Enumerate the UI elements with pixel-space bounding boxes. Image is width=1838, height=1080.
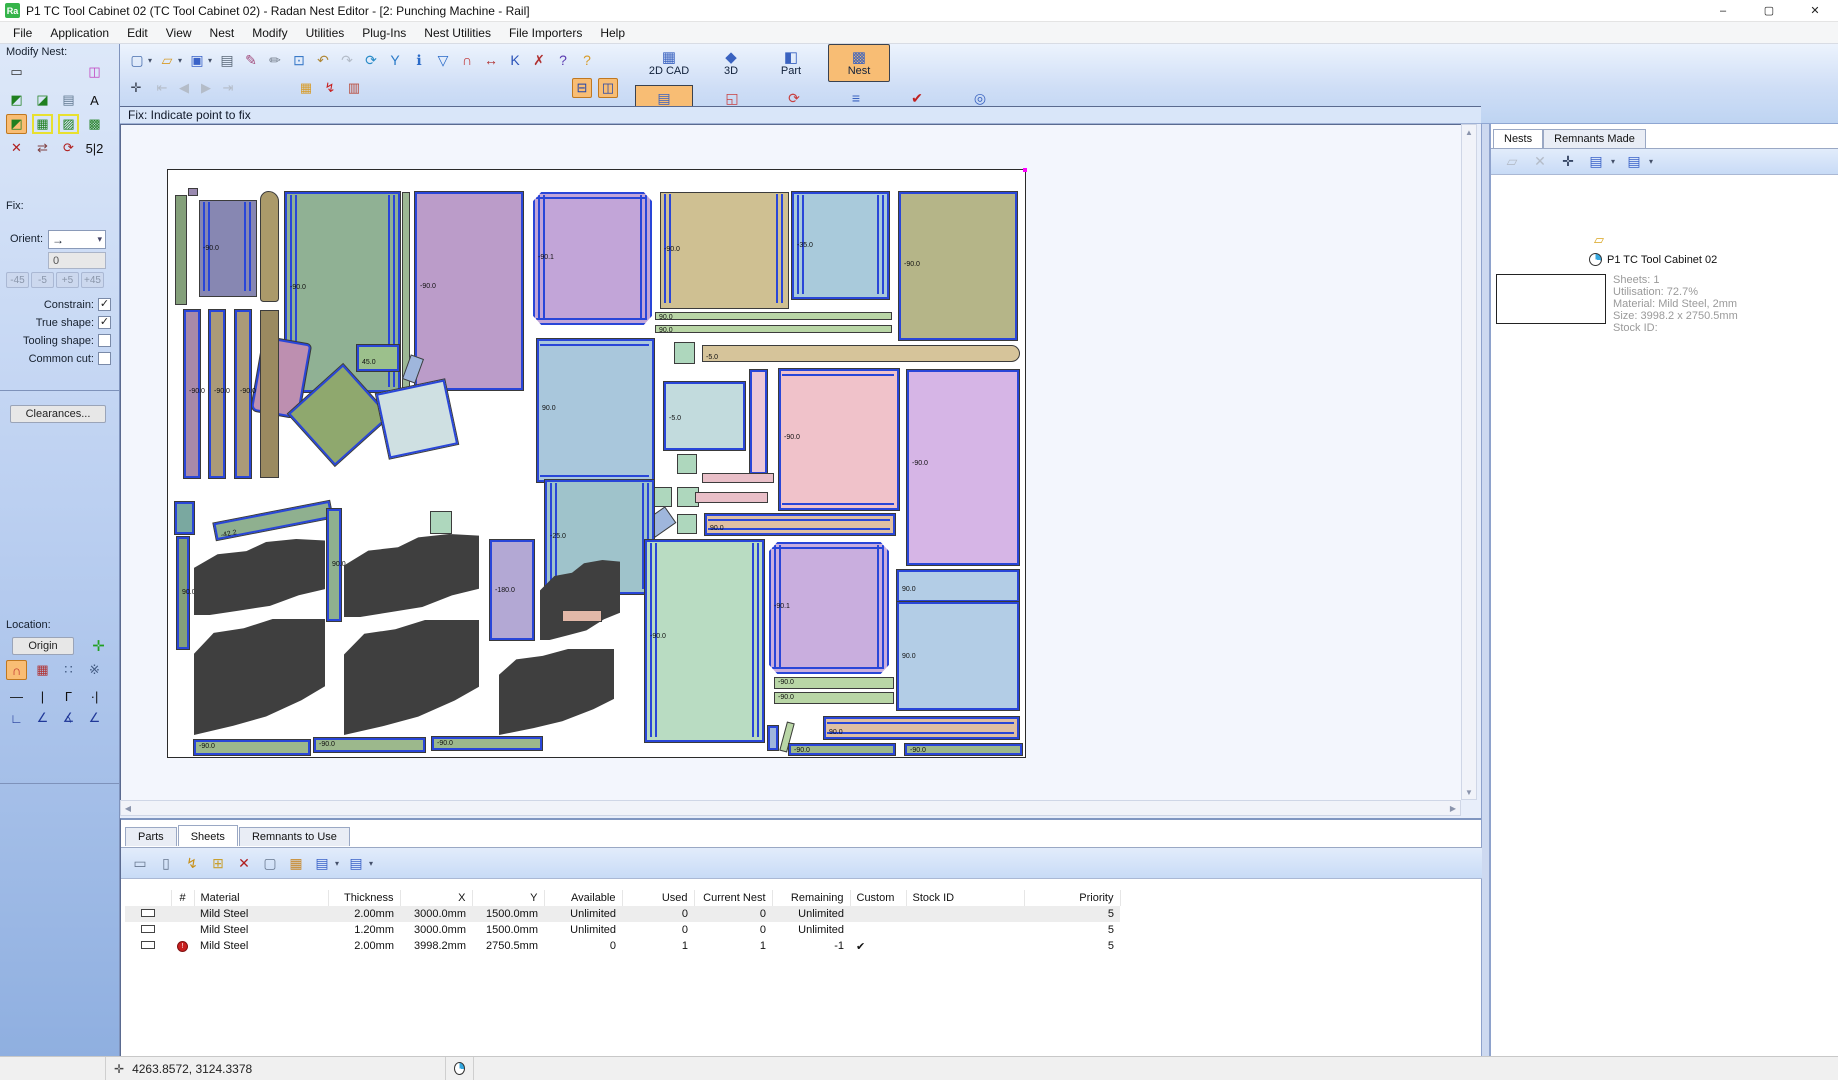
open-nest-icon[interactable]: ▱ — [1501, 151, 1523, 173]
nested-part[interactable]: -42.2 — [213, 501, 332, 540]
mode-tab-part[interactable]: ◧Part — [766, 44, 816, 82]
scroll-up-icon[interactable]: ▲ — [1462, 125, 1476, 139]
k-factor-icon[interactable]: K — [504, 49, 526, 71]
nest-title: P1 TC Tool Cabinet 02 — [1607, 254, 1717, 266]
cell: Mild Steel — [194, 922, 328, 938]
nested-part[interactable] — [194, 539, 325, 615]
nested-part[interactable]: -90.0 — [209, 310, 225, 478]
open-file-icon[interactable]: ▱ — [156, 49, 178, 71]
nested-part[interactable] — [344, 620, 479, 735]
nested-part[interactable]: -90.0 — [789, 744, 895, 755]
dimension-label: 45.0 — [362, 359, 376, 366]
dimension-label: -180.0 — [495, 587, 515, 594]
save-icon-dropdown[interactable]: ▾ — [208, 56, 212, 65]
dimension-label: -90.0 — [794, 747, 810, 754]
column-header-Custom[interactable]: Custom — [850, 890, 906, 906]
add-sheet-icon[interactable]: ▭ — [129, 852, 151, 874]
part-tool-line — [757, 543, 759, 737]
nests-panel: NestsRemnants Made ▱✕✛▤▾▤▾ ▱ P1 TC Tool … — [1490, 124, 1838, 1056]
cell: 0 — [622, 906, 694, 922]
part-tool-line — [540, 344, 649, 346]
nested-part[interactable] — [562, 610, 602, 622]
cell: 5 — [1024, 906, 1120, 922]
scroll-down-icon[interactable]: ▼ — [1462, 785, 1476, 799]
dimension-label: -90.1 — [538, 254, 554, 261]
dimension-label: -90.0 — [910, 747, 926, 754]
new-file-icon-dropdown[interactable]: ▾ — [148, 56, 152, 65]
cell: 2.00mm — [328, 906, 400, 922]
snap-horizontal-icon[interactable]: — — [6, 686, 27, 706]
quick-sheet-icon[interactable]: ↯ — [181, 852, 203, 874]
checkbox[interactable]: ✓ — [98, 316, 111, 329]
menu-item-modify[interactable]: Modify — [243, 24, 296, 42]
redo-icon[interactable]: ↷ — [336, 49, 358, 71]
whats-this-icon[interactable]: ? — [552, 49, 574, 71]
nested-part[interactable]: 90.0 — [897, 570, 1019, 602]
window-controls: –▢✕ — [1700, 0, 1838, 22]
part-tool-line — [776, 194, 778, 303]
columns-combo-icon[interactable]: ▤ — [345, 852, 367, 874]
cell: 5 — [1024, 938, 1120, 954]
horizontal-scrollbar[interactable]: ◀ ▶ — [120, 800, 1461, 816]
column-header-Priority[interactable]: Priority — [1024, 890, 1120, 906]
column-header-Thickness[interactable]: Thickness — [328, 890, 400, 906]
part-tool-line — [827, 732, 1014, 734]
undo-icon[interactable]: ↶ — [312, 49, 334, 71]
new-doc-icon[interactable]: ▢ — [259, 852, 281, 874]
open-file-icon-dropdown[interactable]: ▾ — [178, 56, 182, 65]
nested-part[interactable]: -90.0 — [184, 310, 200, 478]
delete-nest-icon[interactable]: ✕ — [1529, 151, 1551, 173]
nested-part[interactable]: -90.0 — [774, 677, 894, 689]
clearances-button[interactable]: Clearances... — [10, 405, 106, 423]
scroll-right-icon[interactable]: ▶ — [1446, 801, 1460, 815]
grid-cut-icon[interactable]: ▥ — [344, 78, 364, 98]
tab-remnants-to-use[interactable]: Remnants to Use — [239, 827, 350, 846]
progress-pie-icon — [454, 1062, 465, 1075]
cell: 1 — [694, 938, 772, 954]
move-part-icon[interactable]: ◩ — [6, 114, 27, 134]
layout-horizontal-icon[interactable]: ⊟ — [572, 78, 592, 98]
nested-part[interactable]: 45.0 — [357, 345, 399, 371]
cell — [125, 938, 171, 954]
jog-icon[interactable]: ✛ — [88, 636, 109, 656]
go-first-icon[interactable]: ⇤ — [152, 78, 172, 98]
3d-icon: ◆ — [725, 50, 737, 65]
column-header-Y[interactable]: Y — [472, 890, 544, 906]
compile-icon: ≡ — [852, 91, 860, 105]
part-tool-line — [249, 202, 251, 291]
snap-grid-points-icon[interactable]: ∷ — [58, 660, 79, 680]
dimension-label: 90.0 — [902, 586, 916, 593]
column-header-Available[interactable]: Available — [544, 890, 622, 906]
help-icon[interactable]: ? — [576, 49, 598, 71]
tab-remnants-made[interactable]: Remnants Made — [1543, 129, 1646, 148]
columns-combo-icon-dropdown[interactable]: ▾ — [369, 859, 373, 868]
mode-tab-label: 3D — [724, 65, 738, 77]
vertical-scrollbar[interactable]: ▲ ▼ — [1461, 124, 1477, 800]
nest-tree-item[interactable]: P1 TC Tool Cabinet 02 — [1589, 253, 1717, 266]
nested-part[interactable] — [702, 473, 774, 483]
info-icon[interactable]: ℹ — [408, 49, 430, 71]
nested-part[interactable] — [344, 534, 479, 617]
menu-item-edit[interactable]: Edit — [118, 24, 157, 42]
column-header-Stock ID[interactable]: Stock ID — [906, 890, 1024, 906]
rotate-part-icon[interactable]: ⟳ — [58, 138, 79, 158]
part-tool-line — [877, 545, 879, 669]
cell — [125, 906, 171, 922]
dimension-label: 90.0 — [542, 405, 556, 412]
block-nest-icon[interactable]: ▨ — [58, 114, 79, 134]
snap-nodes-icon[interactable]: Y — [384, 49, 406, 71]
sheet-row[interactable]: Mild Steel1.20mm3000.0mm1500.0mmUnlimite… — [125, 922, 1120, 938]
application-window: Ra P1 TC Tool Cabinet 02 (TC Tool Cabine… — [0, 0, 1838, 1080]
dimension-label: 90.0 — [182, 589, 196, 596]
cell — [906, 906, 1024, 922]
snap-end-icon[interactable]: ·| — [84, 686, 105, 706]
dimension-label: -25.0 — [550, 533, 566, 540]
scroll-left-icon[interactable]: ◀ — [121, 801, 135, 815]
part-tool-line — [642, 483, 644, 589]
tooling-icon: ◱ — [725, 91, 738, 105]
nested-part[interactable]: -90.0 — [779, 369, 899, 510]
left-sidebar: Modify Nest: ▭◫◩◪▤A◩▦▨▩✕⇄⟳5|2 Fix: Orien… — [0, 44, 120, 1056]
magnet-icon[interactable]: ∩ — [456, 49, 478, 71]
pan-icon[interactable]: ✛ — [126, 78, 146, 98]
cell: 1.20mm — [328, 922, 400, 938]
menu-item-nest[interactable]: Nest — [201, 24, 244, 42]
column-header-Remaining[interactable]: Remaining — [772, 890, 850, 906]
part-tool-line — [708, 528, 890, 530]
nested-part[interactable] — [750, 370, 767, 474]
status-bar: ✛ 4263.8572, 3124.3378 — [0, 1056, 1838, 1080]
nested-part[interactable]: -90.0 — [660, 192, 789, 309]
stock-sheet[interactable]: -90.0-90.0-90.0-90.1-90.0-35.0-90.090.09… — [167, 169, 1026, 758]
nest-info-line: Sheets: 1 — [1613, 274, 1659, 286]
cell: 1500.0mm — [472, 922, 544, 938]
location-label: Location: — [6, 619, 51, 631]
view-style-icon-dropdown[interactable]: ▾ — [1611, 157, 1615, 166]
nested-part[interactable]: 90.0 — [177, 537, 189, 649]
minimize-button[interactable]: – — [1700, 0, 1746, 22]
nested-part[interactable]: 90.0 — [897, 602, 1019, 710]
part-tool-line — [752, 543, 754, 737]
tab-nests[interactable]: Nests — [1493, 129, 1543, 148]
column-header-Used[interactable]: Used — [622, 890, 694, 906]
checkbox-label: Tooling shape: — [23, 335, 94, 347]
cell: 0 — [544, 938, 622, 954]
dimension-label: -90.0 — [199, 743, 215, 750]
cell: Unlimited — [772, 922, 850, 938]
delete-point-icon[interactable]: ✗ — [528, 49, 550, 71]
go-next-icon[interactable]: ▶ — [196, 78, 216, 98]
menu-bar: FileApplicationEditViewNestModifyUtiliti… — [0, 22, 1838, 44]
nested-part[interactable] — [194, 619, 325, 735]
insert-sheet-icon[interactable]: ▯ — [155, 852, 177, 874]
selection-box-icon[interactable]: ▭ — [6, 62, 27, 82]
nested-part[interactable] — [430, 511, 452, 534]
nested-part[interactable] — [175, 195, 187, 305]
nested-part[interactable]: -5.0 — [702, 345, 1020, 362]
sheets-table-header: #MaterialThicknessXYAvailableUsedCurrent… — [125, 890, 1120, 906]
tab-sheets[interactable]: Sheets — [178, 825, 238, 846]
mode-tab-nest[interactable]: ▩Nest — [828, 44, 890, 82]
detail-style-icon[interactable]: ▤ — [1623, 151, 1645, 173]
dimension-label: -90.0 — [778, 679, 794, 686]
nested-part[interactable]: -90.1 — [533, 192, 652, 325]
toolbar: ▢▾▱▾▣▾▤✎✏⊡↶↷⟳Yℹ▽∩↔K✗?? ✛⇤◀▶⇥▦↯▥⊟◫ ▦2D CA… — [120, 44, 1838, 124]
layout-vertical-icon[interactable]: ◫ — [598, 78, 618, 98]
nested-part[interactable]: -90.1 — [769, 542, 889, 674]
tab-parts[interactable]: Parts — [125, 827, 177, 846]
nest-info-line: Size: 3998.2 x 2750.5mm — [1613, 310, 1738, 322]
dimension-label: -90.0 — [650, 633, 666, 640]
part-tool-line — [536, 318, 647, 320]
orient-dropdown[interactable]: → ▾ — [48, 230, 106, 249]
panel-splitter[interactable] — [1481, 124, 1490, 1056]
snap-rays-icon[interactable]: ※ — [84, 660, 105, 680]
detail-style-icon-dropdown[interactable]: ▾ — [1649, 157, 1653, 166]
orient-value: → — [52, 233, 64, 247]
rotate-icon[interactable]: ⟳ — [360, 49, 382, 71]
title-bar: Ra P1 TC Tool Cabinet 02 (TC Tool Cabine… — [0, 0, 1838, 22]
column-header-X[interactable]: X — [400, 890, 472, 906]
cell — [906, 922, 1024, 938]
dimension-label: -90.0 — [784, 434, 800, 441]
nested-part[interactable] — [260, 191, 279, 302]
nested-part[interactable]: -90.0 — [645, 540, 764, 742]
checkbox[interactable] — [98, 352, 111, 365]
orient-label: Orient: — [10, 233, 43, 245]
nested-part[interactable]: 90.0 — [537, 339, 654, 482]
snap-mid-icon[interactable]: Γ — [58, 686, 79, 706]
chevron-down-icon: ▾ — [97, 234, 102, 245]
cell: 3000.0mm — [400, 922, 472, 938]
nested-part[interactable]: 90.0 — [824, 717, 1019, 739]
dimension-icon[interactable]: ↔ — [480, 49, 502, 71]
nest-icon: ▩ — [852, 50, 866, 65]
angle-icon[interactable]: ∠ — [32, 708, 53, 728]
pair-nest-icon[interactable]: ▦ — [32, 114, 53, 134]
nested-part[interactable] — [376, 379, 458, 458]
mode-tab-2d-cad[interactable]: ▦2D CAD — [640, 44, 698, 82]
nested-part[interactable]: -90.0 — [314, 738, 425, 752]
nested-part[interactable]: -90.0 — [907, 370, 1019, 565]
sheet-row[interactable]: !Mild Steel2.00mm3998.2mm2750.5mm011-1✔5 — [125, 938, 1120, 954]
cell: Unlimited — [544, 922, 622, 938]
text-icon[interactable]: A — [84, 90, 105, 110]
stock-grid-icon[interactable]: ▦ — [285, 852, 307, 874]
view-combo-icon-dropdown[interactable]: ▾ — [335, 859, 339, 868]
delete-part-icon[interactable]: ✕ — [6, 138, 27, 158]
auto-nest-icon[interactable]: ↯ — [320, 78, 340, 98]
cell: ✔ — [850, 938, 906, 954]
nested-part[interactable]: 90.0 — [705, 514, 895, 535]
menu-item-application[interactable]: Application — [41, 24, 118, 42]
angle-button-plus5[interactable]: +5 — [56, 272, 79, 288]
utilisation-pie-icon — [1589, 253, 1602, 266]
nested-part[interactable]: -90.0 — [899, 192, 1017, 340]
origin-button[interactable]: Origin — [12, 637, 74, 655]
nested-part[interactable]: -90.0 — [235, 310, 251, 478]
dimension-label: -90.0 — [420, 283, 436, 290]
mode-tab-3d[interactable]: ◆3D — [706, 44, 756, 82]
nest-part-icon[interactable]: ◩ — [6, 90, 27, 110]
pan-view-icon[interactable]: ✛ — [1557, 151, 1579, 173]
nested-part[interactable]: 90.0 — [655, 312, 892, 320]
split-icon[interactable]: 5|2 — [84, 138, 105, 158]
go-prev-icon[interactable]: ◀ — [174, 78, 194, 98]
nested-part[interactable]: -90.0 — [774, 692, 894, 704]
nested-part[interactable] — [768, 726, 778, 750]
copy-sheet-icon[interactable]: ⊞ — [207, 852, 229, 874]
part-icon: ◧ — [784, 50, 798, 65]
checkbox[interactable] — [98, 334, 111, 347]
sheet-shape-icon — [141, 941, 155, 949]
checkbox-row-common-cut-: Common cut: — [29, 352, 111, 365]
close-button[interactable]: ✕ — [1792, 0, 1838, 22]
part-tool-line — [640, 195, 642, 320]
menu-item-plug-ins[interactable]: Plug-Ins — [353, 24, 415, 42]
sheet-grid-icon[interactable]: ▦ — [296, 78, 316, 98]
nest-canvas[interactable]: -90.0-90.0-90.0-90.1-90.0-35.0-90.090.09… — [120, 124, 1461, 800]
part-tool-line — [540, 475, 649, 477]
part-tool-line — [877, 195, 879, 294]
cell: Mild Steel — [194, 906, 328, 922]
menu-item-nest-utilities[interactable]: Nest Utilities — [415, 24, 500, 42]
sheet-row[interactable]: Mild Steel2.00mm3000.0mm1500.0mmUnlimite… — [125, 906, 1120, 922]
nested-part[interactable]: -90.0 — [194, 740, 310, 755]
nested-part[interactable]: -90.0 — [432, 737, 542, 750]
cell — [125, 922, 171, 938]
menu-item-utilities[interactable]: Utilities — [297, 24, 354, 42]
snap-vertical-icon[interactable]: | — [32, 686, 53, 706]
column-header-Material[interactable]: Material — [194, 890, 328, 906]
angle-to-icon[interactable]: ∠ — [84, 708, 105, 728]
dimension-label: -5.0 — [669, 415, 681, 422]
nests-panel-content: ▱ P1 TC Tool Cabinet 02 Sheets: 1Utilisa… — [1491, 175, 1838, 1056]
sheet-shape-icon — [141, 925, 155, 933]
angle-button-plus45[interactable]: +45 — [81, 272, 104, 288]
checkbox-row-constrain-: Constrain:✓ — [44, 298, 111, 311]
axis-icon[interactable]: ∟ — [6, 708, 27, 728]
folder-icon: ▱ — [1594, 232, 1604, 248]
pencil-icon[interactable]: ✎ — [240, 49, 262, 71]
nested-part[interactable]: -90.0 — [415, 192, 523, 390]
prompt-bar: Fix: Indicate point to fix — [120, 106, 1481, 124]
cell: -1 — [772, 938, 850, 954]
nested-part[interactable] — [674, 342, 695, 364]
checkbox-label: True shape: — [36, 317, 94, 329]
sheet-corner-marker — [1023, 168, 1027, 172]
angle-button-minus45[interactable]: -45 — [6, 272, 29, 288]
nested-part[interactable]: -90.0 — [199, 200, 257, 297]
maximize-button[interactable]: ▢ — [1746, 0, 1792, 22]
dimension-label: -90.0 — [290, 284, 306, 291]
verify-icon: ✔ — [911, 91, 923, 105]
part-tool-line — [782, 374, 894, 376]
bottom-panel: PartsSheetsRemnants to Use ▭▯↯⊞✕▢▦▤▾▤▾ #… — [120, 818, 1481, 1056]
view-style-icon[interactable]: ▤ — [1585, 151, 1607, 173]
print-icon[interactable]: ▤ — [216, 49, 238, 71]
menu-item-view[interactable]: View — [157, 24, 201, 42]
bottom-panel-toolbar: ▭▯↯⊞✕▢▦▤▾▤▾ — [121, 847, 1482, 879]
checkbox[interactable]: ✓ — [98, 298, 111, 311]
app-logo-icon: Ra — [5, 3, 20, 18]
nested-part[interactable]: -180.0 — [490, 540, 534, 640]
dimension-label: -90.0 — [912, 460, 928, 467]
nested-part[interactable]: 90.0 — [327, 509, 341, 621]
cell: 1500.0mm — [472, 906, 544, 922]
angle-button-minus5[interactable]: -5 — [31, 272, 54, 288]
draft-tools-icon[interactable]: ✏ — [264, 49, 286, 71]
dimension-label: -90.0 — [437, 740, 453, 747]
filter-icon[interactable]: ▽ — [432, 49, 454, 71]
nested-part[interactable] — [188, 188, 198, 196]
nests-panel-tabs: NestsRemnants Made — [1493, 127, 1646, 148]
nested-part[interactable] — [677, 514, 697, 534]
cell — [850, 906, 906, 922]
menu-item-help[interactable]: Help — [591, 24, 634, 42]
cell: 3998.2mm — [400, 938, 472, 954]
nest-info-line: Utilisation: 72.7% — [1613, 286, 1698, 298]
2d-cad-icon: ▦ — [662, 50, 676, 65]
angle-from-icon[interactable]: ∡ — [58, 708, 79, 728]
nested-part[interactable] — [695, 492, 768, 503]
nested-part[interactable]: -35.0 — [792, 192, 889, 299]
nested-part[interactable] — [499, 649, 614, 735]
position-icon: ✛ — [114, 1062, 124, 1076]
transform-icon[interactable]: ⊡ — [288, 49, 310, 71]
nest-thumbnail[interactable] — [1496, 274, 1606, 324]
nest-info-line: Material: Mild Steel, 2mm — [1613, 298, 1737, 310]
dimension-label: -90.0 — [778, 694, 794, 701]
nested-part[interactable]: 90.0 — [655, 325, 892, 333]
view-combo-icon[interactable]: ▤ — [311, 852, 333, 874]
report-icon[interactable]: ▤ — [58, 90, 79, 110]
nested-part[interactable] — [677, 454, 697, 474]
nested-part[interactable]: -90.0 — [905, 744, 1022, 755]
save-icon[interactable]: ▣ — [186, 49, 208, 71]
dimension-label: 90.0 — [710, 525, 724, 532]
angle-input[interactable]: 0 — [48, 252, 106, 269]
nested-part[interactable]: -5.0 — [664, 382, 745, 450]
menu-item-file[interactable]: File — [4, 24, 41, 42]
menu-item-file-importers[interactable]: File Importers — [500, 24, 591, 42]
exit-nest-icon[interactable]: ◫ — [84, 62, 105, 82]
dimension-label: -90.0 — [664, 246, 680, 253]
nested-part[interactable] — [652, 487, 672, 507]
snap-magnet-icon[interactable]: ∩ — [6, 660, 27, 680]
column-header-icon[interactable] — [125, 890, 171, 906]
modify-nest-label: Modify Nest: — [6, 46, 67, 58]
dimension-label: -90.0 — [240, 388, 256, 395]
go-last-icon[interactable]: ⇥ — [218, 78, 238, 98]
mode-tab-label: 2D CAD — [649, 65, 689, 77]
delete-sheet-icon[interactable]: ✕ — [233, 852, 255, 874]
cell: 3000.0mm — [400, 906, 472, 922]
column-header-#[interactable]: # — [171, 890, 194, 906]
part-tool-line — [781, 194, 783, 303]
nest-fill-icon[interactable]: ◪ — [32, 90, 53, 110]
column-header-Current Nest[interactable]: Current Nest — [694, 890, 772, 906]
array-nest-icon[interactable]: ▩ — [84, 114, 105, 134]
duplicate-part-icon[interactable]: ⇄ — [32, 138, 53, 158]
new-file-icon[interactable]: ▢ — [126, 49, 148, 71]
nested-part[interactable] — [260, 310, 279, 478]
snap-grid-icon[interactable]: ▦ — [32, 660, 53, 680]
nested-part[interactable] — [175, 502, 194, 534]
